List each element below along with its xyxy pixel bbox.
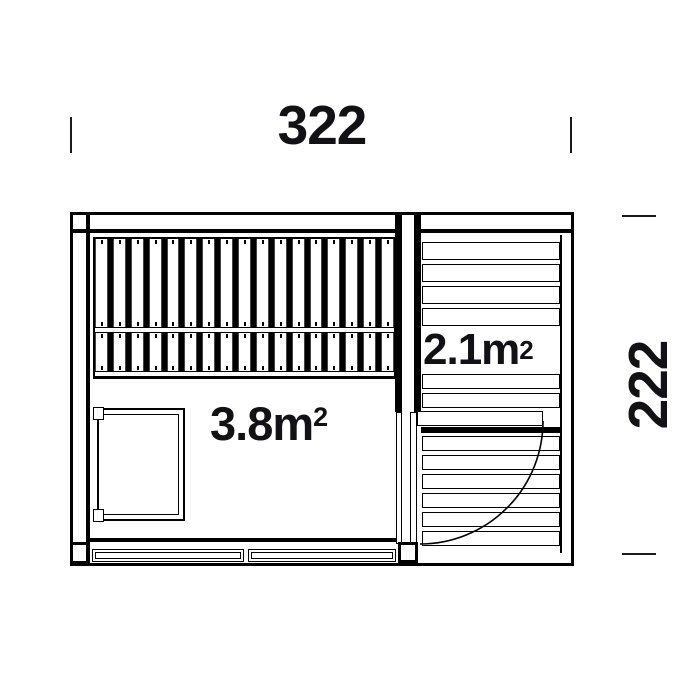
terrace-threshold-line <box>421 427 562 433</box>
terrace-area-label: 2.1m2 <box>421 326 559 374</box>
bench-slat <box>345 333 358 371</box>
main-room-area-sup: 2 <box>313 402 327 432</box>
deck-board <box>422 374 560 389</box>
bench-slat <box>95 239 108 327</box>
deck-board <box>422 436 560 451</box>
bench-slat <box>202 239 215 327</box>
deck-board <box>422 264 560 282</box>
bench-slat <box>131 239 144 327</box>
bench-slat <box>184 239 197 327</box>
partition-wall-left-line <box>395 212 402 412</box>
partition-wall-bottom-post <box>398 542 418 563</box>
front-wall-panel-right <box>248 549 396 562</box>
bench-slat <box>274 333 287 371</box>
bench-foot-top <box>93 407 104 420</box>
inner-wall-top <box>70 229 574 233</box>
bench-slat <box>345 239 358 327</box>
bench-slat <box>131 333 144 371</box>
height-dimension-label: 222 <box>568 305 700 465</box>
main-room-area-value: 3.8m <box>210 397 313 450</box>
bench-slat <box>113 333 126 371</box>
bench-slat <box>292 239 305 327</box>
bench-slat <box>95 333 108 371</box>
bench-slat <box>238 239 251 327</box>
bench-slat <box>238 333 251 371</box>
corner-post-bottom-left <box>70 542 89 564</box>
bench-slat-area <box>93 237 396 379</box>
dimension-tick-right-top <box>622 215 656 217</box>
floor-plan: 322 222 3.8m2 2.1m2 <box>0 0 700 700</box>
bench-slat <box>310 239 323 327</box>
bench-slat <box>363 333 376 371</box>
door-leaf <box>417 411 543 426</box>
front-wall-panel-left <box>92 549 244 562</box>
door-jamb-right <box>410 412 417 544</box>
deck-board <box>422 531 560 546</box>
deck-board <box>422 308 560 326</box>
bench-slat <box>149 333 162 371</box>
partition-wall-right-line <box>414 212 421 412</box>
deck-board <box>422 474 560 489</box>
bench-slat <box>327 239 340 327</box>
deck-board <box>422 455 560 470</box>
inner-wall-left <box>86 212 90 566</box>
bench-slat <box>310 333 323 371</box>
width-dimension-label: 322 <box>70 98 574 153</box>
deck-board <box>422 512 560 527</box>
door-jamb-left <box>396 412 402 544</box>
bench-slat <box>167 333 180 371</box>
deck-board <box>422 242 560 260</box>
bench-slat <box>256 333 269 371</box>
deck-board <box>422 493 560 508</box>
inner-wall-bottom-left <box>88 538 397 542</box>
main-room-area-label: 3.8m2 <box>210 400 327 447</box>
bench-slat <box>184 333 197 371</box>
bench-slat <box>149 239 162 327</box>
partition-wall-top-post <box>402 228 414 234</box>
bench-slat-row-lower <box>95 333 394 371</box>
dimension-tick-right-bottom <box>622 553 656 555</box>
bench-slat <box>202 333 215 371</box>
bench-rail-bottom <box>95 371 394 377</box>
bench-slat <box>381 239 394 327</box>
bench-slat <box>113 239 126 327</box>
terrace-area-value: 2.1m <box>423 328 519 372</box>
terrace-decking <box>421 237 562 553</box>
bench-slat <box>167 239 180 327</box>
bench-slat <box>274 239 287 327</box>
bench-slat <box>220 333 233 371</box>
wall-bench <box>97 408 185 521</box>
bench-foot-bottom <box>93 509 104 522</box>
bench-slat <box>327 333 340 371</box>
deck-board <box>422 393 560 408</box>
bench-slat <box>256 239 269 327</box>
bench-slat <box>292 333 305 371</box>
bench-slat-row-upper <box>95 239 394 327</box>
terrace-area-sup: 2 <box>519 337 532 363</box>
deck-board <box>422 286 560 304</box>
bench-slat <box>220 239 233 327</box>
bench-slat <box>363 239 376 327</box>
bench-slat <box>381 333 394 371</box>
